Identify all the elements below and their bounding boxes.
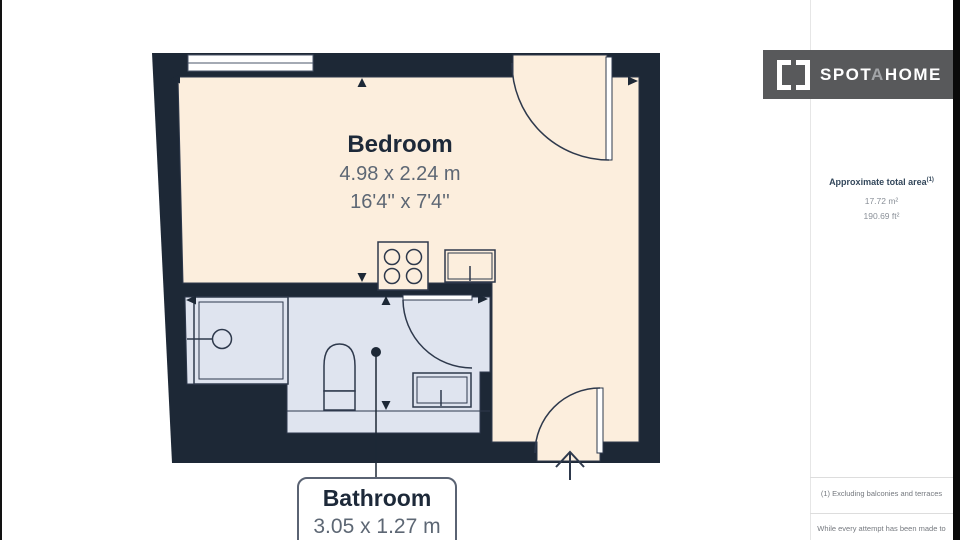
page-left-edge <box>0 0 2 540</box>
kitchen-sink <box>445 250 495 282</box>
bathroom-dimensions-metric: 3.05 x 1.27 m <box>299 513 455 540</box>
spotahome-brackets-icon <box>777 60 810 90</box>
sidebar-note-divider-bottom <box>810 513 953 514</box>
note-exclusion: (1) Excluding balconies and terraces <box>810 489 953 498</box>
logo-text-home: HOME <box>885 65 942 84</box>
total-area-ft2: 190.69 ft² <box>810 211 953 221</box>
bedroom-dimensions-imperial: 16'4'' x 7'4'' <box>290 188 510 216</box>
floorplan-page: Bedroom 4.98 x 2.24 m 16'4'' x 7'4'' Bat… <box>0 0 960 540</box>
total-area-heading: Approximate total area(1) <box>810 177 953 187</box>
spotahome-logo-banner: SPOTAHOME <box>763 50 955 99</box>
bathroom-callout-box: Bathroom 3.05 x 1.27 m <box>297 477 457 540</box>
total-area-footnote-marker: (1) <box>927 177 934 183</box>
entrance-door-leaf <box>597 388 603 453</box>
bracket-right-icon <box>796 60 810 90</box>
bedroom-room-name: Bedroom <box>290 130 510 160</box>
bedroom-dimensions-metric: 4.98 x 2.24 m <box>290 160 510 188</box>
bathroom-room-name: Bathroom <box>299 483 455 513</box>
bedroom-label: Bedroom 4.98 x 2.24 m 16'4'' x 7'4'' <box>290 130 510 216</box>
toilet <box>324 344 355 410</box>
bracket-left-icon <box>777 60 791 90</box>
page-right-edge <box>953 0 960 540</box>
total-area-heading-text: Approximate total area <box>829 177 927 187</box>
logo-text-spot: SPOT <box>820 65 871 84</box>
sidebar-note-divider-top <box>810 477 953 478</box>
stove <box>378 242 428 290</box>
bathroom-door-leaf <box>403 295 472 300</box>
bedroom-door-leaf <box>606 57 612 160</box>
bathroom-sink <box>413 373 471 407</box>
spotahome-logo-text: SPOTAHOME <box>820 65 942 85</box>
note-disclaimer: While every attempt has been made to <box>810 524 953 533</box>
total-area-m2: 17.72 m² <box>810 196 953 206</box>
logo-text-a: A <box>871 65 885 84</box>
